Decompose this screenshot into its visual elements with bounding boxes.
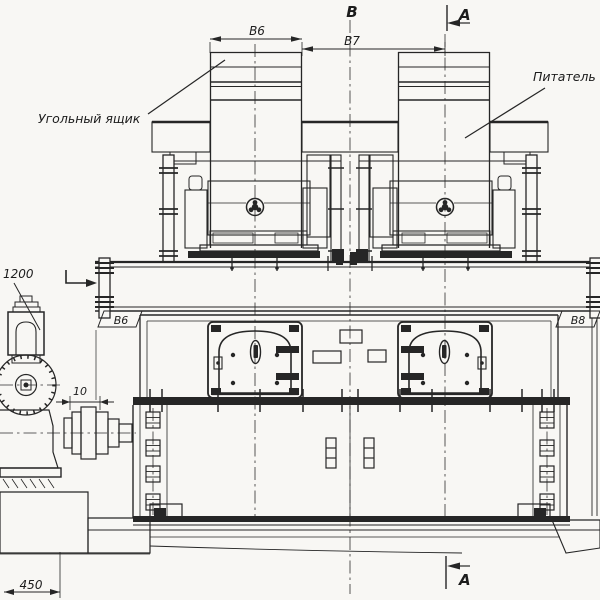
flange-bar [133,397,570,405]
dim-10-label: 10 [73,385,87,398]
section-a-bottom-label: А [458,571,471,589]
base-bar [133,516,570,522]
flag-b8-label: В8 [571,314,586,327]
engineering-drawing: В6 В7 А В А В6 В8 Угольный ящик Питат [0,0,600,600]
dim-1200-label: 1200 [3,267,34,281]
paper-background [0,0,600,600]
dim-b7-label: В7 [344,34,360,48]
flag-b6-label: В6 [114,314,129,327]
coal-box-label: Угольный ящик [38,111,141,126]
section-a-top-label: А [458,6,471,24]
feeder-label: Питатель [533,69,596,84]
drawing-canvas: В6 В7 А В А В6 В8 Угольный ящик Питат [0,0,600,600]
view-b-label: В [346,3,357,21]
dim-450-label: 450 [20,578,43,592]
dim-b6-label: В6 [249,24,265,38]
